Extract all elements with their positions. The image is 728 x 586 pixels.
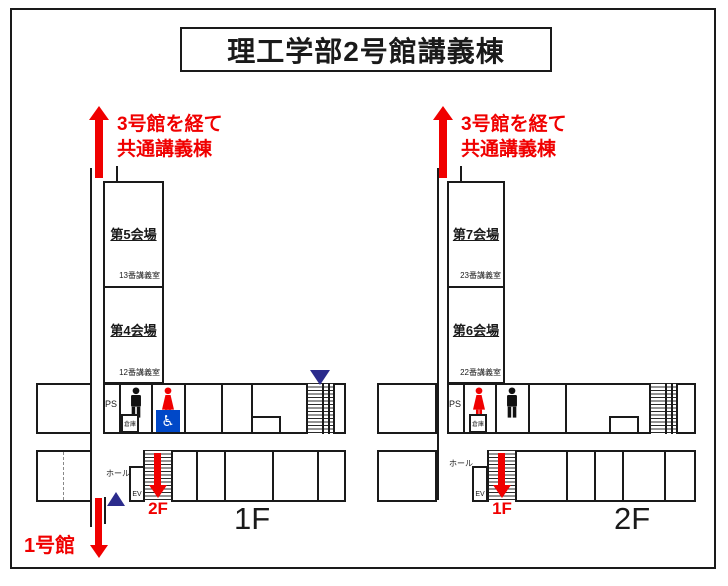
room-title: 第7会場: [447, 224, 505, 243]
lecture-wing: [447, 181, 505, 384]
room-title: 第5会場: [103, 224, 164, 243]
corridor-wall-stub: [116, 166, 118, 182]
wall: [495, 383, 497, 434]
hall-label: ホール: [449, 458, 473, 469]
wall: [463, 383, 465, 434]
stair-rail: [328, 383, 330, 434]
stairs-upper: [306, 383, 335, 434]
wall: [528, 383, 530, 434]
stairs-down-arrow-shaft: [154, 453, 161, 486]
room-block: [377, 383, 437, 434]
wall: [151, 383, 153, 434]
room-title: 第4会場: [103, 320, 164, 339]
wall: [221, 383, 223, 434]
wall: [317, 450, 319, 502]
wall: [272, 450, 274, 502]
wall: [184, 383, 186, 434]
sub-room: [251, 416, 281, 434]
route-note-line1: 3号館を経て: [461, 112, 567, 137]
room-block: [36, 450, 92, 502]
elevator-label: EV: [475, 491, 484, 498]
wheelchair-symbol: ♿: [161, 414, 174, 429]
route-up-arrow-icon: [433, 106, 453, 120]
pipe-shaft-label: PS: [103, 399, 119, 409]
storage-label: 倉庫: [472, 419, 484, 428]
page-title-box: 理工学部2号館講義棟: [180, 27, 552, 72]
route-up-arrow-icon: [89, 106, 109, 120]
room-number: 12番講義室: [103, 367, 160, 378]
dashed-partition: [63, 452, 64, 500]
storage-label: 倉庫: [124, 419, 136, 428]
room-block: [36, 383, 92, 434]
stairs-upper: [649, 383, 678, 434]
route-note-line2: 共通講義棟: [117, 137, 223, 162]
triangle-down-icon: [310, 370, 330, 385]
storage-room: 倉庫: [469, 414, 487, 433]
entrance-wall: [104, 497, 106, 524]
exit-down-arrow-icon: [90, 545, 108, 558]
floor-label: 2F: [614, 501, 650, 537]
room-block: [377, 450, 437, 502]
triangle-up-icon: [107, 492, 125, 506]
floor-label: 1F: [234, 501, 270, 537]
stair-rail: [671, 383, 673, 434]
stairs-down-arrow-icon: [149, 485, 167, 498]
stairs-down-arrow-shaft: [498, 453, 505, 486]
stair-rail: [322, 383, 324, 434]
wheelchair-icon: ♿: [156, 410, 180, 432]
room-number: 22番講義室: [447, 367, 501, 378]
wall: [224, 450, 226, 502]
room-title: 第6会場: [447, 320, 505, 339]
pipe-shaft-label: PS: [447, 399, 463, 409]
wall: [622, 450, 624, 502]
route-note-line1: 3号館を経て: [117, 112, 223, 137]
stairs-down-arrow-icon: [493, 485, 511, 498]
exit-label: 1号館: [24, 529, 75, 558]
wall: [196, 450, 198, 502]
wall: [566, 450, 568, 502]
corridor-wall-stub: [460, 166, 462, 182]
route-up-arrow-shaft: [439, 119, 447, 178]
route-note-line2: 共通講義棟: [461, 137, 567, 162]
elevator: EV: [472, 466, 488, 502]
hall-label: ホール: [106, 468, 130, 479]
room-number: 13番講義室: [103, 270, 160, 281]
route-note: 3号館を経て 共通講義棟: [117, 112, 223, 162]
page-title: 理工学部2号館講義棟: [227, 30, 505, 70]
sub-room: [609, 416, 639, 434]
male-restroom-icon: [504, 387, 520, 421]
lower-band: [143, 450, 346, 502]
exit-down-arrow-shaft: [95, 498, 102, 546]
stair-rail: [665, 383, 667, 434]
room-divider-wall: [103, 286, 164, 288]
room-number: 23番講義室: [447, 270, 501, 281]
storage-room: 倉庫: [121, 414, 139, 433]
stairs-destination: 1F: [487, 499, 517, 519]
stairs-destination: 2F: [143, 499, 173, 519]
wall: [664, 450, 666, 502]
route-note: 3号館を経て 共通講義棟: [461, 112, 567, 162]
room-divider-wall: [447, 286, 505, 288]
corridor-wall: [437, 168, 439, 500]
wall: [565, 383, 567, 434]
route-up-arrow-shaft: [95, 119, 103, 178]
wall: [594, 450, 596, 502]
elevator-label: EV: [132, 491, 141, 498]
building-floor-map: 理工学部2号館講義棟 3号館を経て 共通講義棟 第5会場 13番講義室 第4会場…: [0, 0, 728, 586]
lecture-wing: [103, 181, 164, 384]
